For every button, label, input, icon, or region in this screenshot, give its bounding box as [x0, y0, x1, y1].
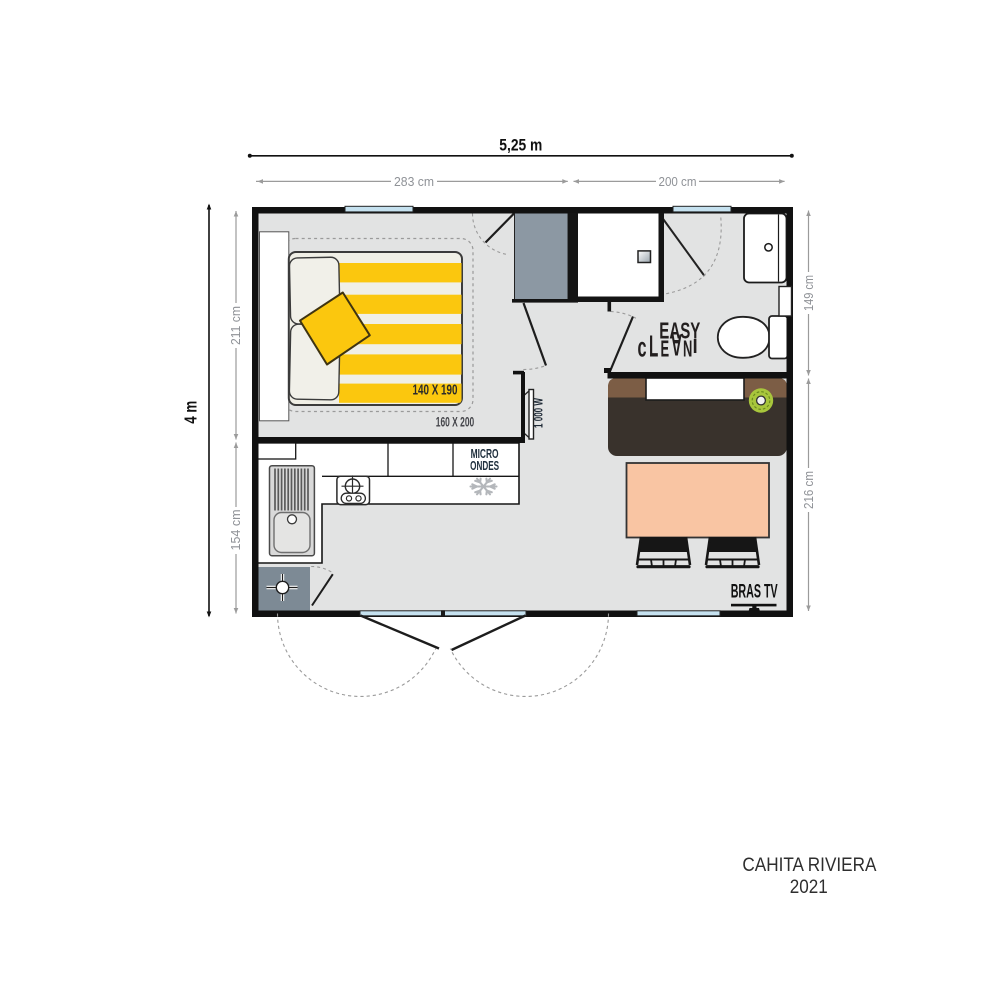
svg-text:216 cm: 216 cm: [801, 471, 816, 509]
svg-text:L: L: [649, 330, 658, 364]
svg-text:140 X 190: 140 X 190: [413, 383, 458, 399]
svg-text:ONDES: ONDES: [470, 459, 499, 473]
svg-text:149 cm: 149 cm: [801, 275, 816, 311]
svg-text:283 cm: 283 cm: [394, 174, 434, 189]
svg-text:200 cm: 200 cm: [659, 174, 697, 189]
svg-text:2021: 2021: [790, 877, 828, 898]
svg-text:A: A: [671, 327, 682, 361]
svg-text:5,25 m: 5,25 m: [499, 136, 542, 155]
svg-text:E: E: [661, 337, 670, 363]
svg-text:160 X 200: 160 X 200: [436, 415, 475, 430]
svg-text:BRAS TV: BRAS TV: [731, 582, 778, 603]
svg-text:211 cm: 211 cm: [228, 306, 243, 345]
svg-text:CAHITA RIVIERA: CAHITA RIVIERA: [742, 855, 876, 876]
svg-text:4 m: 4 m: [181, 401, 201, 424]
svg-text:154 cm: 154 cm: [228, 510, 243, 551]
svg-text:c: c: [638, 331, 647, 363]
svg-text:N: N: [683, 337, 692, 363]
svg-text:1 000 W: 1 000 W: [534, 398, 546, 428]
